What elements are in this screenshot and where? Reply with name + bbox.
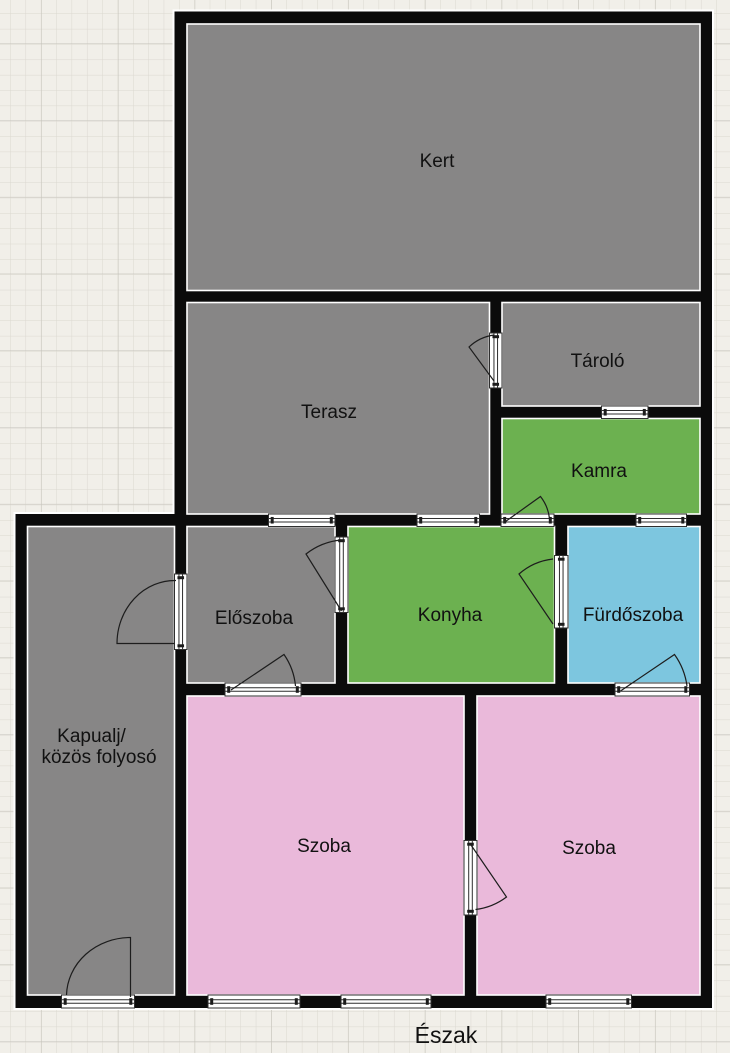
- svg-text:Kapualj/: Kapualj/: [57, 726, 126, 747]
- svg-text:Fürdőszoba: Fürdőszoba: [583, 605, 684, 626]
- svg-text:Szoba: Szoba: [562, 838, 616, 859]
- svg-text:közös folyosó: közös folyosó: [41, 747, 156, 768]
- svg-text:Terasz: Terasz: [301, 402, 357, 423]
- svg-text:Kert: Kert: [420, 151, 456, 172]
- svg-text:Kamra: Kamra: [571, 461, 627, 482]
- svg-text:Tároló: Tároló: [571, 351, 625, 372]
- svg-text:Észak: Észak: [415, 1022, 478, 1048]
- svg-text:Szoba: Szoba: [297, 836, 351, 857]
- svg-text:Előszoba: Előszoba: [215, 608, 294, 629]
- svg-text:Konyha: Konyha: [418, 605, 483, 626]
